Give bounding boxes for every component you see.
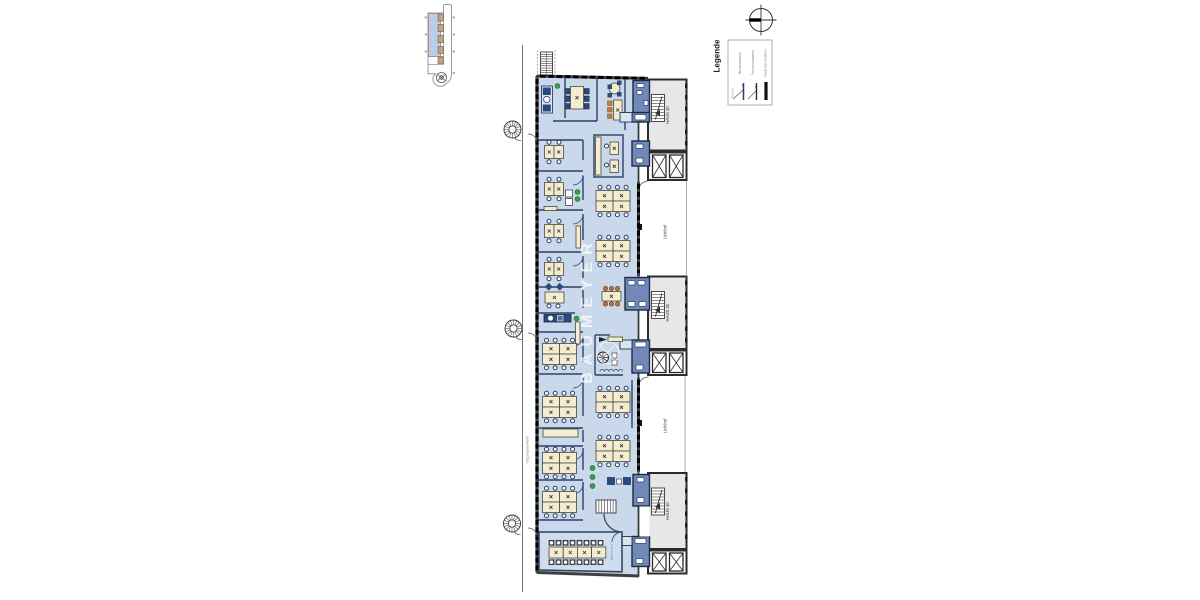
svg-text:BAUMEYER: BAUMEYER [579,236,596,384]
svg-text:Besprechung: Besprechung [610,543,614,560]
svg-text:Lichthof: Lichthof [663,224,668,240]
svg-text:Bestandswand: Bestandswand [738,52,742,74]
svg-text:HAUS 30: HAUS 30 [665,106,670,124]
svg-text:HAUS 40: HAUS 40 [665,502,670,520]
svg-text:Trockenbauwand: Trockenbauwand [751,50,755,75]
svg-text:HAUS 35: HAUS 35 [665,303,670,321]
svg-text:Abbruch: Abbruch [731,87,735,98]
svg-text:Neue Konstruktion: Neue Konstruktion [764,49,768,76]
svg-text:Legende: Legende [713,39,722,72]
svg-text:Lichthof: Lichthof [663,418,668,434]
svg-text:Tiefgarageneinfahrt: Tiefgarageneinfahrt [526,436,530,464]
